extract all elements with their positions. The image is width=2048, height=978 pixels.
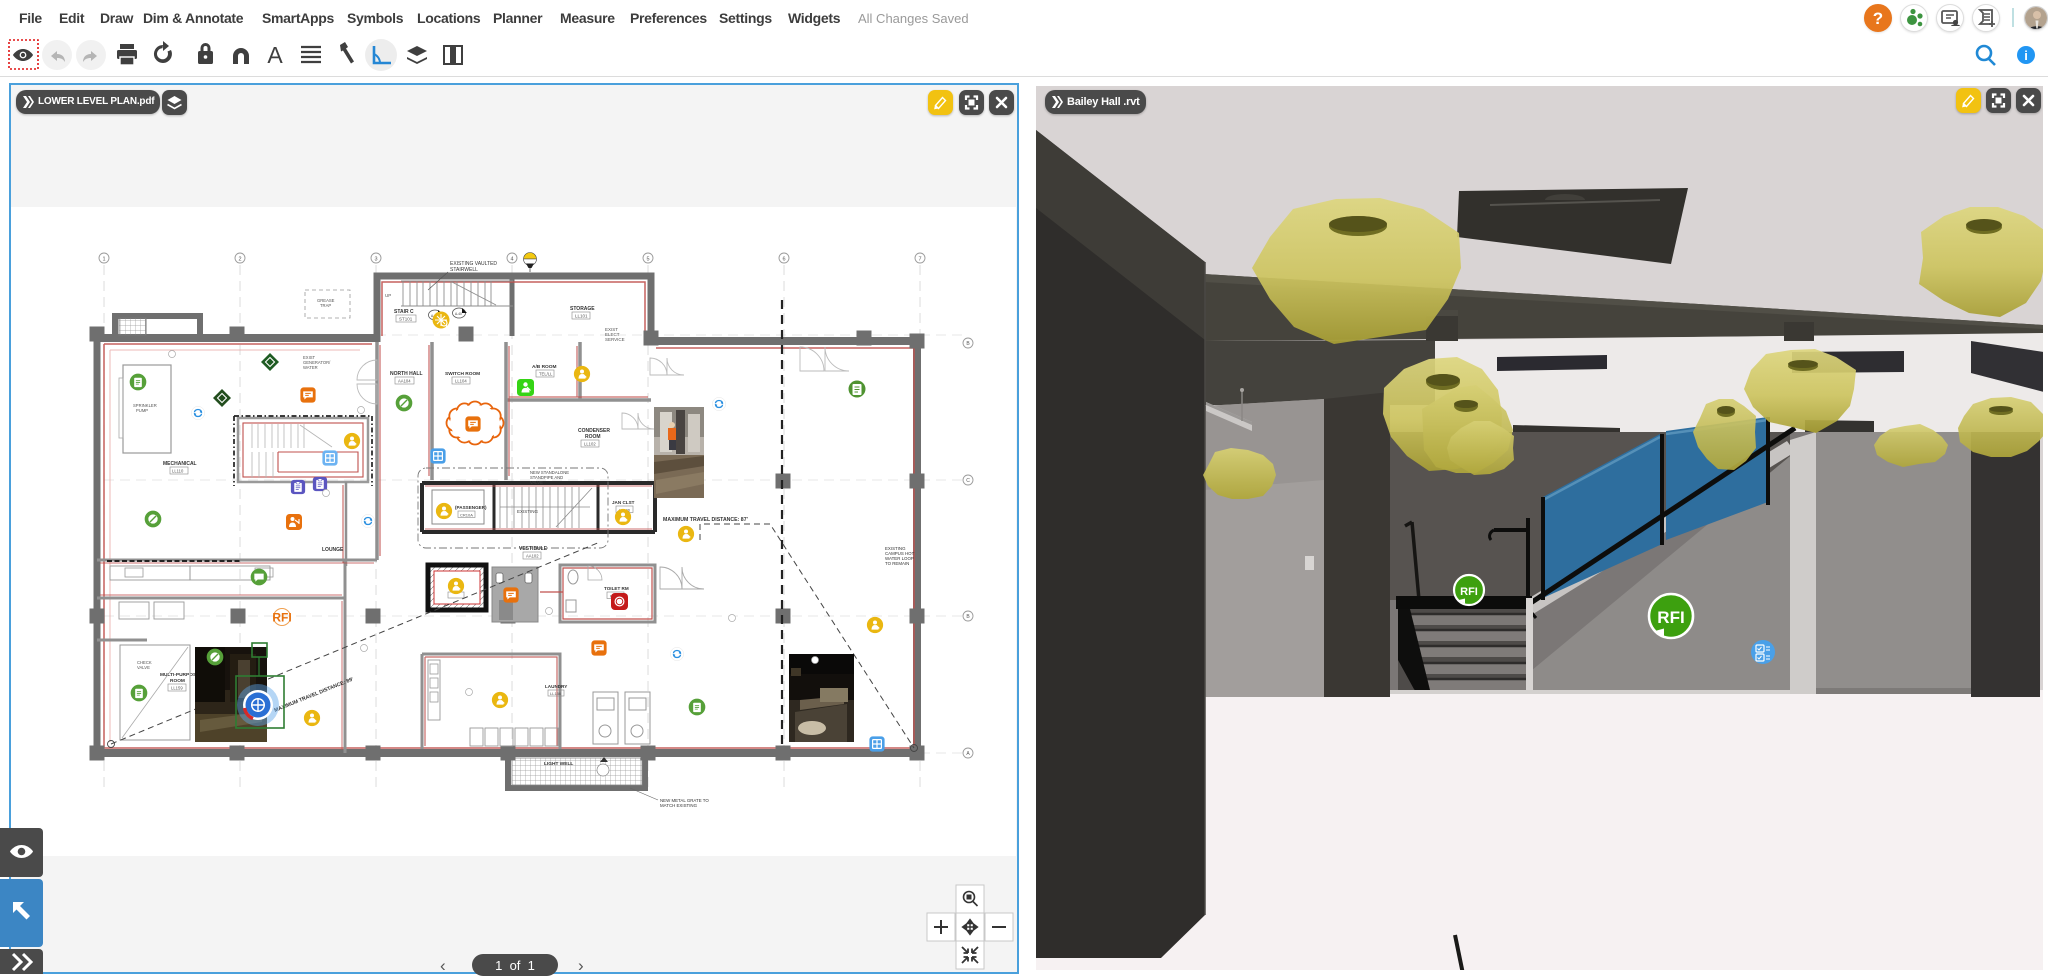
svg-text:SERVICE: SERVICE	[605, 337, 625, 342]
svg-text:MATCH EXISTING: MATCH EXISTING	[660, 803, 698, 808]
svg-text:7: 7	[918, 257, 921, 263]
svg-text:ROOM: ROOM	[170, 678, 185, 684]
svg-text:A: A	[267, 42, 283, 68]
svg-text:WATER: WATER	[303, 365, 318, 370]
svg-text:RFI: RFI	[272, 611, 291, 625]
svg-text:(PASSENGER): (PASSENGER)	[455, 505, 487, 510]
svg-text:EXISTING: EXISTING	[517, 509, 539, 514]
svg-text:?: ?	[1873, 9, 1883, 28]
svg-text:MAXIMUM TRAVEL DISTANCE: 87': MAXIMUM TRAVEL DISTANCE: 87'	[663, 517, 748, 523]
svg-text:AA104: AA104	[398, 379, 411, 384]
svg-text:STAIR C: STAIR C	[394, 309, 414, 315]
svg-text:LL156: LL156	[550, 691, 562, 696]
svg-text:i: i	[2024, 48, 2028, 63]
svg-text:VESTIBULE: VESTIBULE	[519, 546, 548, 552]
svg-text:AA102: AA102	[526, 554, 539, 559]
svg-text:SWITCH ROOM: SWITCH ROOM	[445, 371, 480, 377]
svg-text:RFI: RFI	[1657, 608, 1684, 627]
svg-text:LL110: LL110	[172, 469, 184, 474]
svg-text:JAN CLST: JAN CLST	[612, 500, 635, 505]
svg-text:LOUNGE: LOUNGE	[322, 547, 344, 553]
svg-text:C: C	[966, 478, 970, 484]
svg-text:A/B ROOM: A/B ROOM	[532, 364, 557, 370]
svg-text:5: 5	[646, 257, 649, 263]
svg-text:A-40: A-40	[455, 312, 462, 316]
svg-text:TOILET RM: TOILET RM	[604, 586, 629, 591]
svg-text:STORAGE: STORAGE	[570, 306, 595, 312]
svg-text:LIGHT WELL: LIGHT WELL	[544, 761, 573, 767]
svg-text:TO REMAIN: TO REMAIN	[885, 561, 909, 566]
svg-text:STAIRWELL: STAIRWELL	[450, 267, 478, 273]
svg-text:LAUNDRY: LAUNDRY	[545, 684, 567, 689]
svg-text:2: 2	[238, 257, 241, 263]
svg-text:ST101: ST101	[399, 317, 413, 322]
svg-text:TEL/LL: TEL/LL	[539, 372, 553, 377]
svg-text:VALVE: VALVE	[137, 665, 150, 670]
svg-text:LL159: LL159	[171, 686, 183, 691]
svg-text:6: 6	[782, 257, 785, 263]
svg-text:4: 4	[510, 257, 513, 263]
svg-text:RFI: RFI	[1460, 586, 1478, 598]
svg-text:PUMP: PUMP	[136, 408, 148, 413]
svg-text:CR10A: CR10A	[460, 513, 473, 518]
svg-text:LL101: LL101	[575, 314, 588, 319]
svg-text:LL104: LL104	[455, 379, 467, 384]
svg-text:3: 3	[374, 257, 377, 263]
svg-text:TRAP: TRAP	[320, 303, 331, 308]
svg-text:ROOM: ROOM	[585, 434, 601, 440]
svg-text:MECHANICAL: MECHANICAL	[163, 461, 197, 467]
svg-text:NORTH HALL: NORTH HALL	[390, 371, 423, 377]
svg-text:LL102: LL102	[584, 442, 596, 447]
svg-text:UP: UP	[385, 293, 391, 298]
svg-text:1: 1	[102, 257, 105, 263]
svg-text:VALVE: VALVE	[530, 480, 543, 485]
